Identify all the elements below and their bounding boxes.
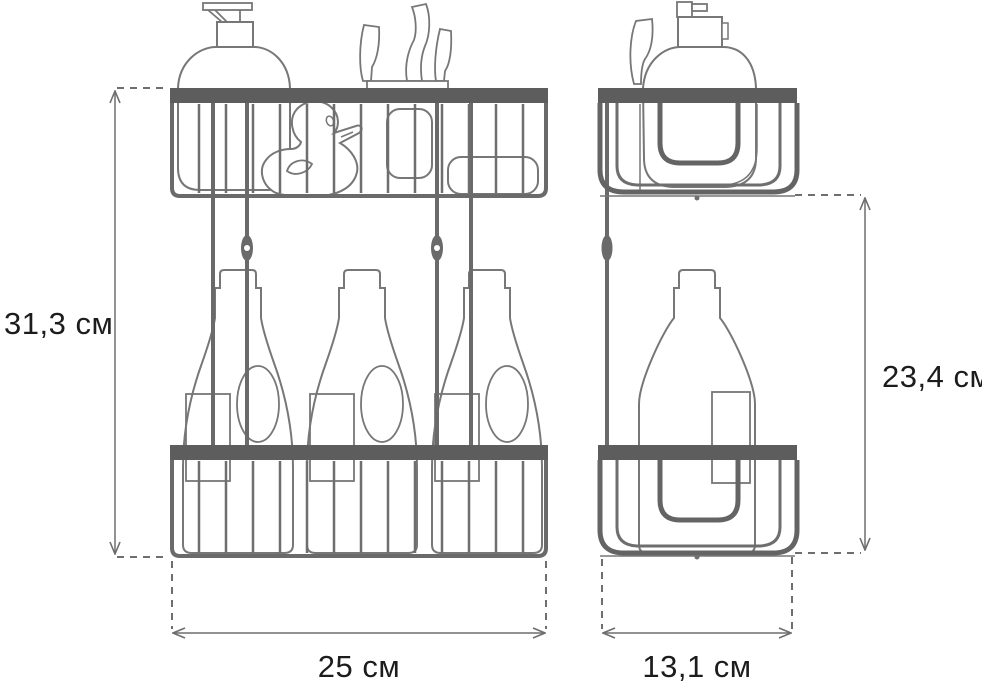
- soap-bar-front: [448, 157, 538, 194]
- detergent-bottles-front: [183, 270, 542, 553]
- dimension-drawing: 31,3 см 23,4 см 25 см 13,1 см: [0, 0, 982, 683]
- flat-bottle-front: [387, 109, 432, 178]
- pump-nozzle: [677, 2, 692, 17]
- hook-prong-left: [360, 25, 379, 81]
- upper-rail-side: [598, 88, 797, 103]
- hook-prong-right: [435, 29, 451, 81]
- depth-label: 13,1 см: [642, 649, 751, 683]
- pump-nozzle-tip: [692, 4, 707, 11]
- caddy-diagram: 31,3 см 23,4 см 25 см 13,1 см: [0, 0, 982, 683]
- lower-rail-side: [598, 445, 797, 460]
- hook-prong-middle: [406, 4, 429, 81]
- connecting-rod-side: [602, 103, 613, 445]
- pump-tab: [722, 23, 728, 39]
- rod-connector: [602, 235, 613, 261]
- drain-peg: [695, 196, 700, 201]
- detergent-bottle: [432, 270, 542, 553]
- drain-peg: [695, 555, 700, 560]
- pump-cap: [217, 22, 253, 48]
- side-view: [598, 2, 797, 560]
- lower-rail-front: [170, 445, 548, 460]
- pump-stem: [208, 10, 240, 22]
- upper-rail-front: [170, 88, 548, 103]
- width-label: 25 см: [318, 649, 400, 683]
- pump-bar: [203, 3, 252, 10]
- pump-cap: [678, 17, 722, 47]
- overall-height-label: 31,3 см: [4, 306, 113, 341]
- front-view: [170, 3, 548, 556]
- hook-set-front: [360, 4, 451, 90]
- hanging-height-label: 23,4 см: [882, 359, 982, 394]
